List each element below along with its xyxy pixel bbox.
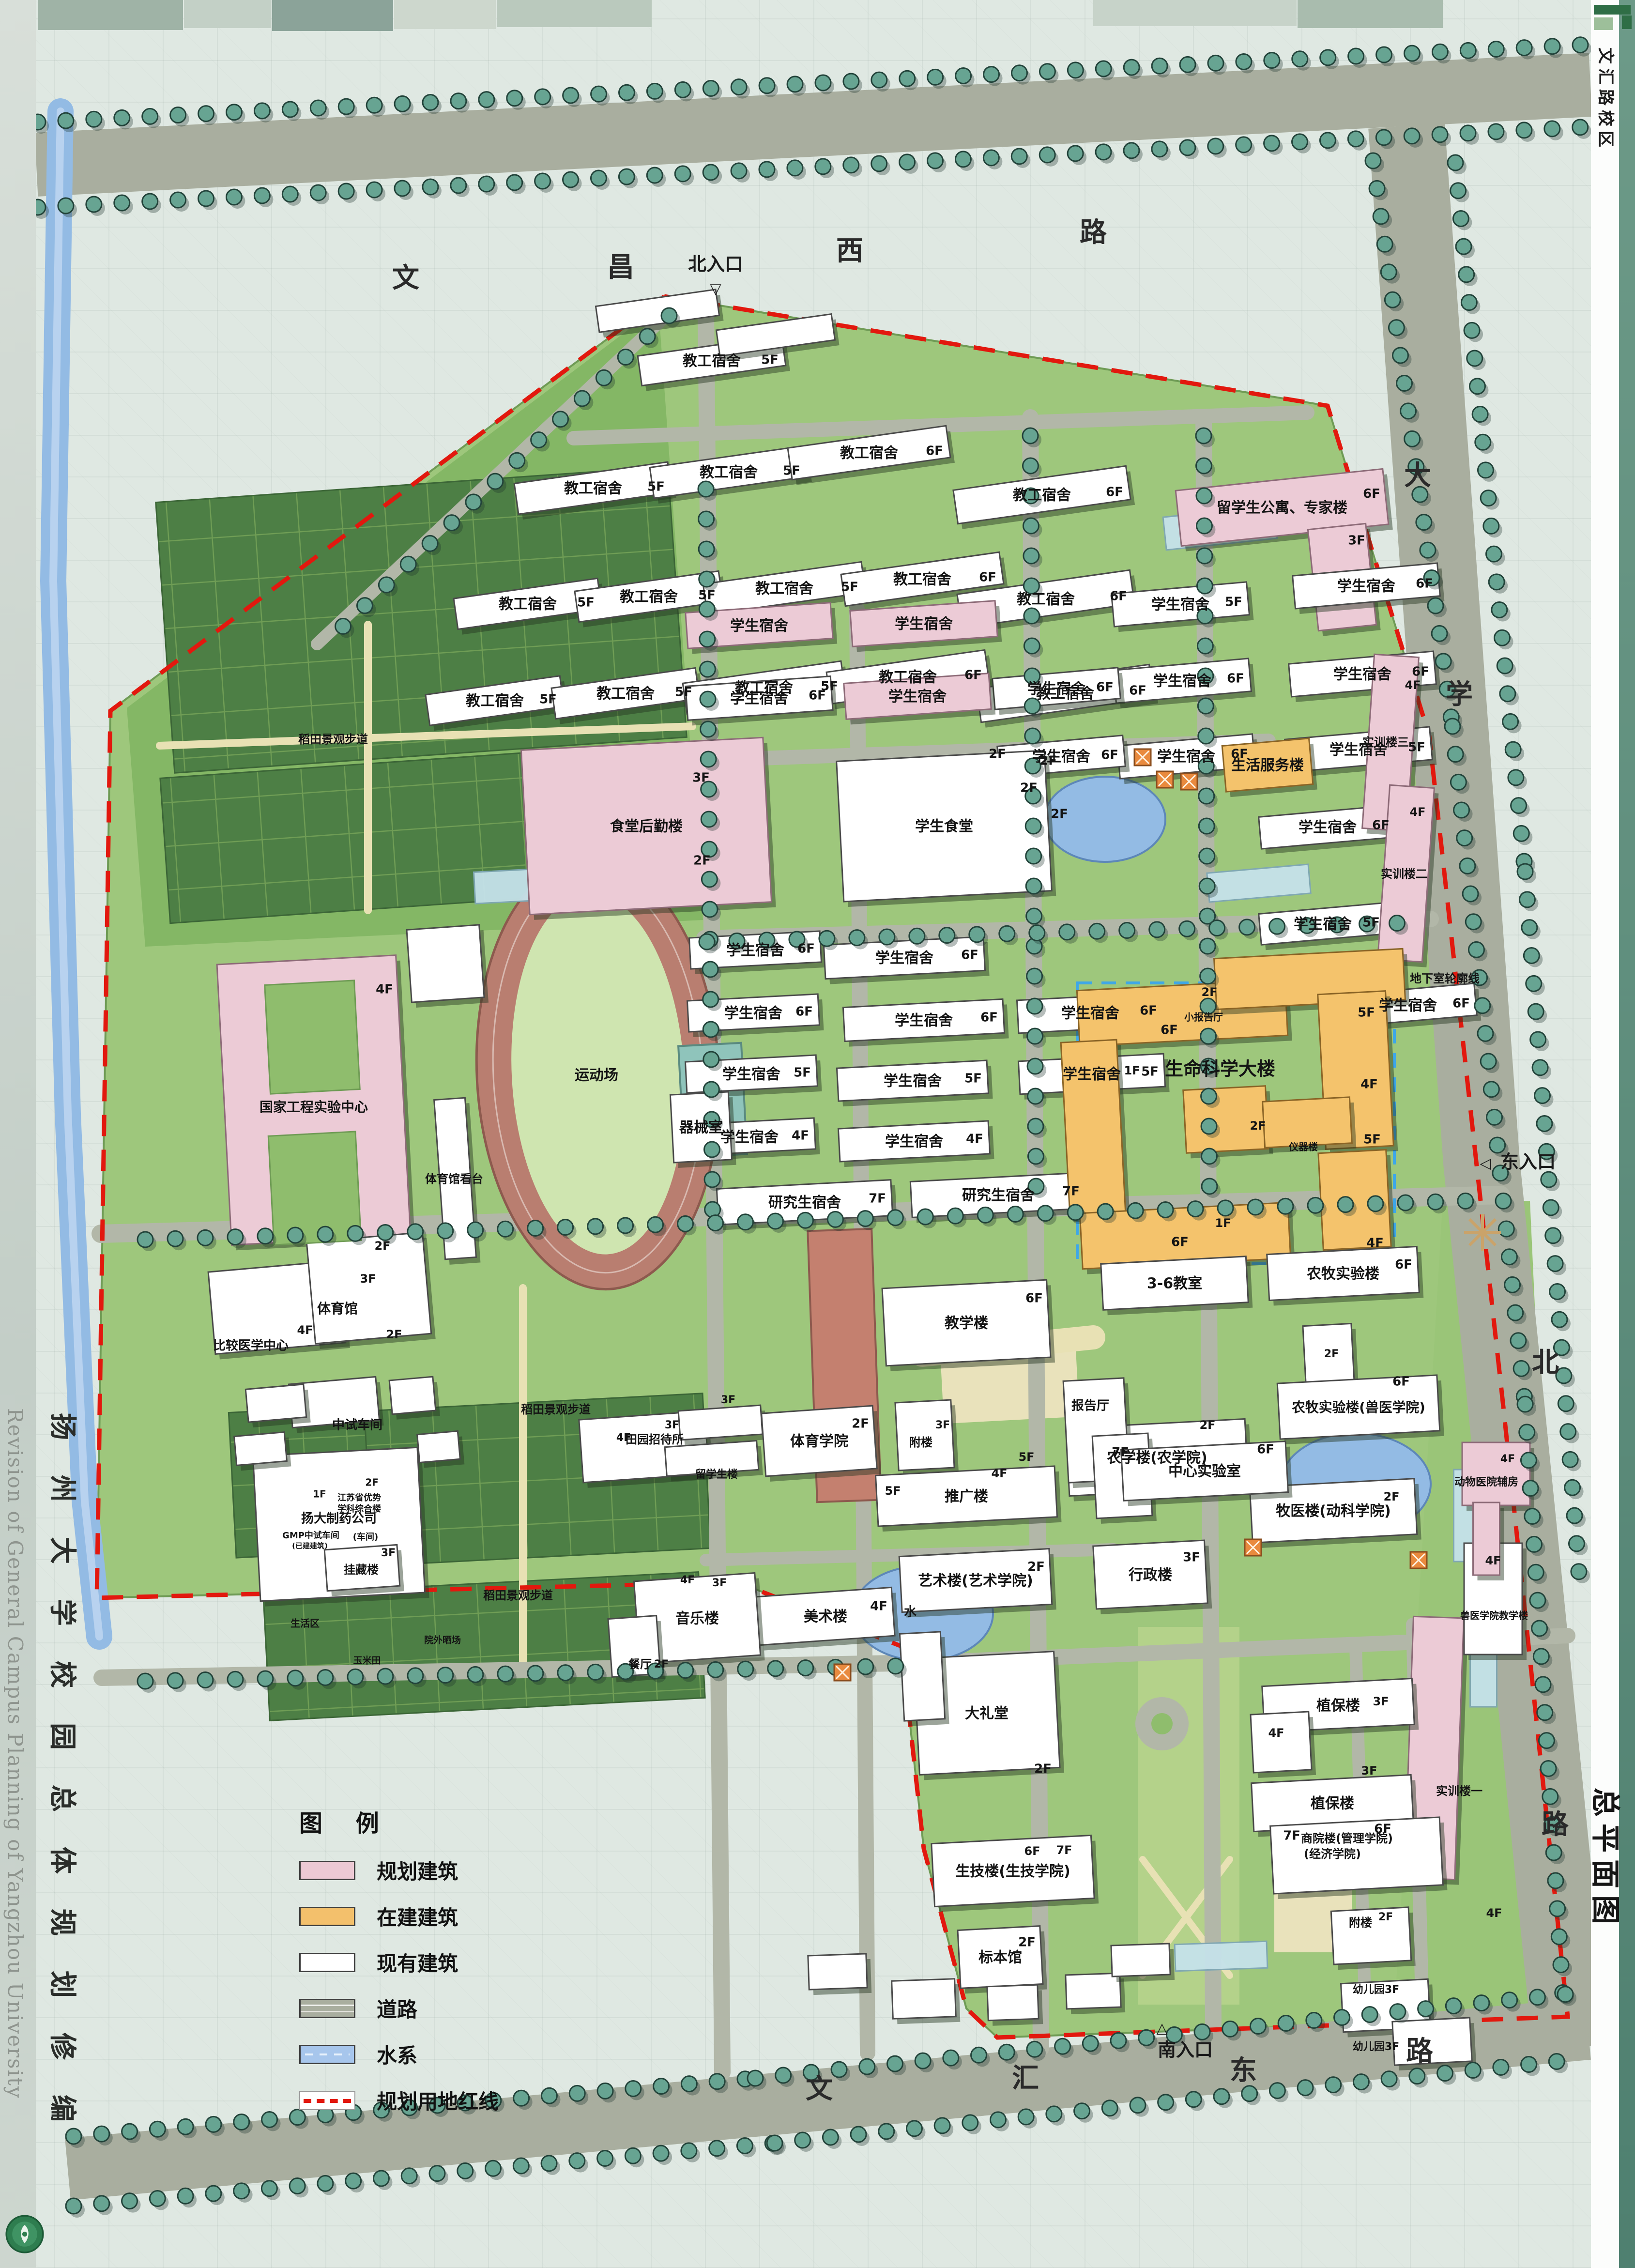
map-label: 1F [1215,1216,1231,1230]
tree [1523,1481,1538,1496]
tree [178,2119,193,2134]
tree [1501,1249,1517,1265]
map-label: 4F [1486,1906,1502,1920]
tree [597,2083,613,2099]
tree [288,1670,303,1686]
tree [983,150,999,166]
building-label: 研究生宿舍 [768,1195,841,1211]
tree [479,176,494,192]
building-label: 教工宿舍 [879,669,937,686]
legend-item: 道路 [299,1993,499,2023]
entrance-label: 南入口 [1158,2039,1213,2061]
tree [618,350,633,365]
tree [1573,37,1588,53]
map-label: 3F [360,1272,376,1286]
road-name-char: 西 [836,235,863,267]
tree [1401,403,1416,419]
tree [1533,1649,1549,1664]
tree [1466,914,1481,930]
tree [1428,1194,1443,1210]
tree [1194,2024,1210,2039]
map-label: 4F [1409,805,1425,819]
building-label: 学生宿舍 [730,690,788,707]
tree [1011,149,1027,164]
legend-item: 规划用地红线 [299,2085,499,2115]
tree [701,721,716,737]
tree [408,1668,423,1684]
tree [1152,58,1167,74]
project-title-cn: 扬州大学校园总体规划修编 [48,1413,76,2122]
corner-logo-mark [1594,5,1631,15]
tree [1202,1149,1217,1164]
tree [849,930,865,946]
tree [1024,548,1039,564]
building-label: 教工宿舍 [840,445,898,462]
tree [1461,295,1477,310]
tree [675,166,690,182]
tree [1541,1172,1557,1187]
tree [858,1659,873,1674]
map-label: 实训楼三 [1362,736,1409,749]
tree [703,1082,719,1097]
tree [254,188,270,203]
map-label: 2F [1020,781,1038,796]
road-name-char: 文 [392,262,419,294]
map-label: 附楼 [1349,1916,1372,1930]
tree [700,631,715,647]
tree [357,598,372,613]
tree [1457,830,1472,846]
tree [737,1214,753,1230]
tree [1405,431,1420,446]
tree [1558,1396,1574,1411]
tree [708,1662,723,1677]
tree [1201,1088,1217,1104]
tree [678,1663,693,1678]
tree [58,198,74,214]
tree [737,2138,752,2154]
tree [767,1213,783,1229]
tree [199,106,214,122]
tree [1039,147,1055,163]
tree [1483,1082,1499,1097]
tree [1348,131,1363,147]
building-label: 学生宿舍 [1157,749,1215,766]
tree [348,1669,363,1685]
tree [1029,925,1045,941]
building-existing [987,1985,1039,2021]
right-green-band [1619,0,1635,2268]
tree [574,391,590,406]
tree [1551,1929,1567,1945]
building-label: 学生宿舍 [1299,819,1357,836]
legend-label: 现有建筑 [377,1947,458,1977]
tree [934,2118,950,2133]
building-label: 学生宿舍 [730,618,788,635]
map-label: 4F [680,1574,695,1586]
tree [943,2050,959,2066]
building-label: 留学生公寓、专家楼 [1217,500,1347,517]
tree [1026,878,1041,894]
road-name-char: 昌 [607,252,634,283]
tree [1027,968,1042,984]
tree [1552,1312,1567,1327]
tree [1475,434,1491,450]
map-label: 2F [1201,985,1217,999]
tree [94,2126,109,2142]
building-existing [895,1400,954,1471]
tree [1404,46,1420,61]
building-existing [407,925,484,1002]
tree [1532,1621,1547,1636]
tree [1179,921,1195,936]
building-label: 学生宿舍 [1294,916,1352,933]
tree [700,691,716,707]
tree [535,173,550,189]
building-label: 教工宿舍 [1017,591,1075,608]
tree [1098,1204,1113,1219]
tree [1208,138,1223,154]
tree [1409,2069,1425,2084]
tree [1139,2030,1154,2045]
building-planned [1462,1442,1530,1505]
tree [1541,1761,1556,1776]
tree [150,2121,165,2137]
building-label: 教工宿舍 [700,464,758,481]
building-label: 生活服务楼 [1231,757,1304,774]
floor-tag: 6F [961,948,978,963]
floor-tag: 5F [841,580,858,595]
map-label: GMP中试车间 [282,1530,339,1541]
tree [1197,638,1213,654]
building-label: 美术楼 [804,1609,847,1625]
tree [871,156,887,171]
tree [1149,922,1165,937]
map-label: 稻田景观步道 [298,733,368,746]
building-label: 学生宿舍 [722,1066,780,1083]
tree [1376,47,1392,62]
tree [282,186,298,202]
tree [1392,348,1408,363]
legend-item: 在建建筑 [299,1901,499,1931]
building-label: 行政楼 [1128,1567,1172,1584]
tree [1529,1990,1545,2005]
tree [1547,1256,1563,1272]
map-label: 动物医院辅房 [1454,1476,1518,1488]
tree [647,83,662,99]
tree [653,2145,669,2161]
map-label: 2F [1250,1119,1266,1133]
tree [1481,490,1496,506]
tree [909,928,925,944]
tree [1537,1116,1552,1131]
floor-tag: 5F [783,464,800,478]
tree [1503,714,1518,729]
tree [888,1658,903,1674]
building-label: 教工宿舍 [893,571,951,588]
legend-items: 规划建筑在建建筑现有建筑道路水系规划用地红线 [299,1855,499,2115]
tree [1456,239,1471,254]
tree [1027,1058,1043,1074]
tree [535,89,550,105]
tree [488,474,503,489]
legend-label: 道路 [377,1993,417,2023]
tree [1381,2071,1397,2087]
tree [290,2178,305,2194]
tree [1334,2010,1350,2025]
tree [1464,322,1480,338]
tree [86,197,102,212]
tree [1385,292,1400,307]
tree [1055,2038,1070,2054]
tree [1528,1004,1543,1019]
tree [558,1220,573,1235]
tree [1038,1206,1053,1221]
building-label: 农牧实验楼 [1306,1266,1379,1283]
tree [1027,1028,1043,1044]
campus-name-vertical: 文汇路校区 [1592,47,1619,147]
tree [1278,2015,1294,2031]
tree [596,370,611,385]
tree [915,2053,931,2069]
map-label: 3F [665,1419,679,1431]
tree [1308,1197,1323,1213]
building-label: 标本馆 [978,1949,1022,1966]
map-label: 3F [721,1394,735,1406]
building-label: 生技楼(生技学院) [955,1863,1070,1880]
tree [198,1230,213,1245]
map-label: 实训楼二 [1381,867,1427,881]
tree [1027,998,1042,1014]
tree [1521,1453,1536,1468]
photo-strip [1298,0,1443,28]
tree [367,97,382,113]
tree [170,192,186,208]
title-char: 区 [1597,131,1614,147]
building-label: 学生宿舍 [895,616,953,633]
tree [1198,698,1213,714]
title-char: 校 [49,1661,76,1688]
floor-tag: 6F [980,1011,998,1025]
tree [569,2153,585,2169]
building-label: 教工宿舍 [596,686,655,703]
building-label: 食堂后勤楼 [610,818,683,835]
floor-tag: 5F [1225,595,1242,610]
map-label: 2F [693,854,711,868]
title-char: 编 [49,2095,76,2122]
tree [640,329,655,344]
tree [588,1219,603,1234]
tree [1024,608,1039,624]
tree [199,191,214,206]
building-label: 教学楼 [945,1315,988,1332]
tree [900,154,915,170]
map-label: 体育馆 [317,1301,358,1317]
tree [1376,130,1391,145]
map-label: 小报告厅 [1184,1011,1223,1023]
building-label: 学生宿舍 [1153,673,1211,690]
floor-tag: 6F [1096,680,1114,695]
legend-label: 规划建筑 [377,1855,458,1885]
tree [815,159,831,174]
tree [228,1229,243,1245]
building-label: 音乐楼 [675,1610,719,1627]
map-label: 兽医学院教学楼 [1460,1610,1528,1622]
tree [1180,140,1195,155]
road-name-char: 北 [1532,1347,1559,1379]
tree [1218,1200,1233,1216]
tree [701,751,716,767]
tree [1524,948,1539,963]
title-char: 州 [49,1475,76,1502]
building-label: 植保楼 [1311,1795,1354,1812]
tree [451,93,466,109]
building-label: 学生宿舍 [1027,681,1085,698]
tree [619,169,634,184]
building-label: 学生宿舍 [1151,597,1209,613]
tree [887,2056,902,2071]
tree [1377,236,1392,252]
tree [1488,41,1504,57]
tree [58,113,74,128]
map-label: 4F [1485,1554,1501,1567]
tree [423,94,438,110]
tree [917,1209,933,1225]
tree [1278,1198,1293,1214]
map-label: 2F [1034,1762,1052,1777]
tree [1437,2066,1452,2081]
tree [1209,920,1225,936]
tree [618,1218,633,1233]
tree [1130,2098,1146,2113]
entrance-label: 东入口 [1500,1151,1556,1173]
legend-swatch-construction [299,1907,355,1926]
map-label: 江苏省优势 [337,1492,381,1503]
floor-tag: 7F [869,1192,886,1206]
floor-tag: 6F [1363,487,1380,501]
tree [1459,267,1474,282]
tree [336,618,351,634]
building-label: 牧医楼(动科学院) [1276,1503,1391,1520]
tree [541,2156,557,2171]
map-label: 2F [989,747,1006,762]
map-label: 留学生楼 [695,1468,738,1481]
tree [1023,458,1038,474]
road-name-char: 路 [1080,217,1107,248]
tree [438,1668,453,1683]
tree [262,2112,277,2128]
floor-tag: 6F [979,570,996,585]
tree [703,165,718,180]
tree [310,185,326,200]
tree [1544,39,1560,54]
tree [700,661,715,677]
roundabout-island [1151,1713,1173,1734]
map-label: 3F [712,1577,727,1589]
tree [310,100,326,116]
tree [563,88,579,103]
tree [797,1212,813,1228]
floor-tag: 5F [647,480,665,494]
campus-map: 教工宿舍5F教工宿舍5F教工宿舍5F教工宿舍6F教工宿舍6F教工宿舍5F教工宿舍… [0,0,1635,2268]
tree [681,2143,697,2159]
tree [234,2183,249,2199]
tree [114,110,130,125]
tree [1508,1305,1523,1320]
tree [591,170,606,186]
tree [1096,144,1111,160]
building-label: 教工宿舍 [466,693,524,710]
building-existing [234,1432,287,1466]
building-label: 学生宿舍 [875,950,933,967]
tree [1250,2018,1266,2034]
floor-tag: 5F [675,685,692,700]
legend-label: 规划用地红线 [377,2085,499,2115]
floor-tag: 6F [1101,748,1118,763]
tree [1397,375,1412,391]
tree [1453,211,1468,226]
tree [1404,128,1420,144]
map-label: 4F [1500,1453,1515,1465]
tree [999,2044,1014,2060]
tree [1398,1195,1413,1211]
tree [906,2121,922,2136]
road-name-char: 路 [1406,2036,1434,2067]
tree [1128,1203,1143,1218]
tree [768,1661,783,1676]
tree [206,2116,221,2132]
tree [1292,51,1308,67]
map-label: 2F [386,1328,402,1341]
tree [699,511,714,527]
tree [703,962,718,977]
tree [619,85,634,100]
tree [1489,574,1504,590]
tree [1573,120,1588,135]
tree [1468,942,1484,957]
road-name-char: 学 [1446,679,1473,710]
tree [282,102,298,117]
map-label: 实训楼一 [1436,1784,1482,1798]
title-char: 修 [49,2033,76,2060]
tree [1158,1202,1173,1217]
tree [956,68,971,83]
tree [738,1661,753,1677]
tree [422,536,438,551]
building-label: 3-6教室 [1147,1275,1202,1292]
tree [1236,137,1252,153]
entrance-marker: △ [1156,2020,1167,2037]
building-label: 学生食堂 [915,818,973,835]
map-label: 5F [1363,1133,1381,1147]
building-label: 大礼堂 [965,1705,1009,1722]
map-label: 5F [1018,1450,1034,1464]
tree [1416,515,1432,530]
map-label: 1F [313,1488,326,1500]
tree [1028,1149,1043,1164]
tree [704,1172,720,1187]
tree [401,2168,417,2184]
tree [541,2088,557,2103]
tree [1550,1284,1565,1299]
tree [528,1220,543,1236]
tree [984,67,999,82]
tree [1519,1425,1535,1440]
tree [1023,428,1038,444]
building-label: 农牧实验楼(兽医学院) [1291,1399,1425,1415]
tree [887,1210,903,1226]
tree [731,79,747,95]
